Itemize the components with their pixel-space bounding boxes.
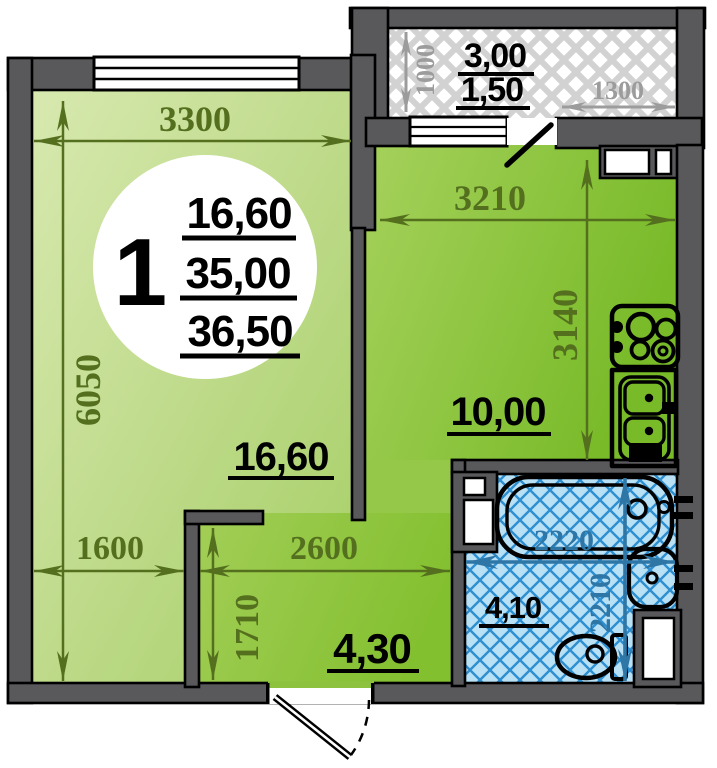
balcony-area-label: 3,00 [464,37,526,75]
dim-bath-width: 2220 [534,524,594,557]
dim-living-width: 3300 [159,99,231,139]
dim-balcony-width: 1300 [592,76,644,105]
vent-shaft-icon [605,150,649,174]
bath-area-label: 4,10 [485,590,541,625]
living-area-label: 16,60 [233,435,328,479]
kitchen-area-label: 10,00 [450,390,545,434]
dim-kitchen-height: 3140 [545,289,585,361]
living-hall-partition [185,511,199,687]
dim-kitchen-width: 3210 [454,178,526,218]
entrance-door-leaf-inner [275,697,350,757]
entrance-jamb-right [371,683,375,704]
left-wall [8,58,32,703]
kitchen-top-wall [366,118,412,146]
badge-room-count: 1 [114,219,166,326]
living-kitchen-thin-wall [352,228,365,520]
floor-plan-canvas: 3300 6050 1600 1710 2600 3210 3140 1000 … [0,0,717,768]
balcony-window [410,117,507,146]
balcony-reduced-area-label: 1,50 [461,71,523,109]
badge-overall-area: 36,50 [187,307,292,356]
entrance-jamb-left [266,683,270,704]
living-hall-stub-wall [185,511,263,524]
dim-hall-height: 1710 [229,594,266,662]
dim-living-height: 6050 [68,354,108,426]
vent-wall-upper [556,118,702,148]
bath-door-panel-small [464,478,485,495]
living-room-window [94,57,299,90]
bath-door-panel [464,500,493,544]
hall-area-label: 4,30 [333,625,411,672]
hall-upper-floor [365,460,455,518]
dim-bath-height: 2210 [584,573,617,633]
entrance-threshold [268,681,374,688]
badge-living-area: 16,60 [186,189,291,238]
entrance-door-swing-arc [351,700,369,755]
top-wall-right [296,58,354,90]
vent-shaft-small-icon [656,150,671,174]
badge-total-area: 35,00 [185,249,290,298]
bath-shaft-niche [643,618,674,679]
balcony-top-wall [350,8,705,28]
dim-living-bottom-width: 1600 [76,530,144,567]
dim-balcony-depth: 1000 [411,44,440,96]
dim-hall-width: 2600 [290,530,358,567]
floor-plan: 3300 6050 1600 1710 2600 3210 3140 1000 … [0,0,717,768]
apartment-badge: 1 16,60 35,00 36,50 [93,155,317,379]
